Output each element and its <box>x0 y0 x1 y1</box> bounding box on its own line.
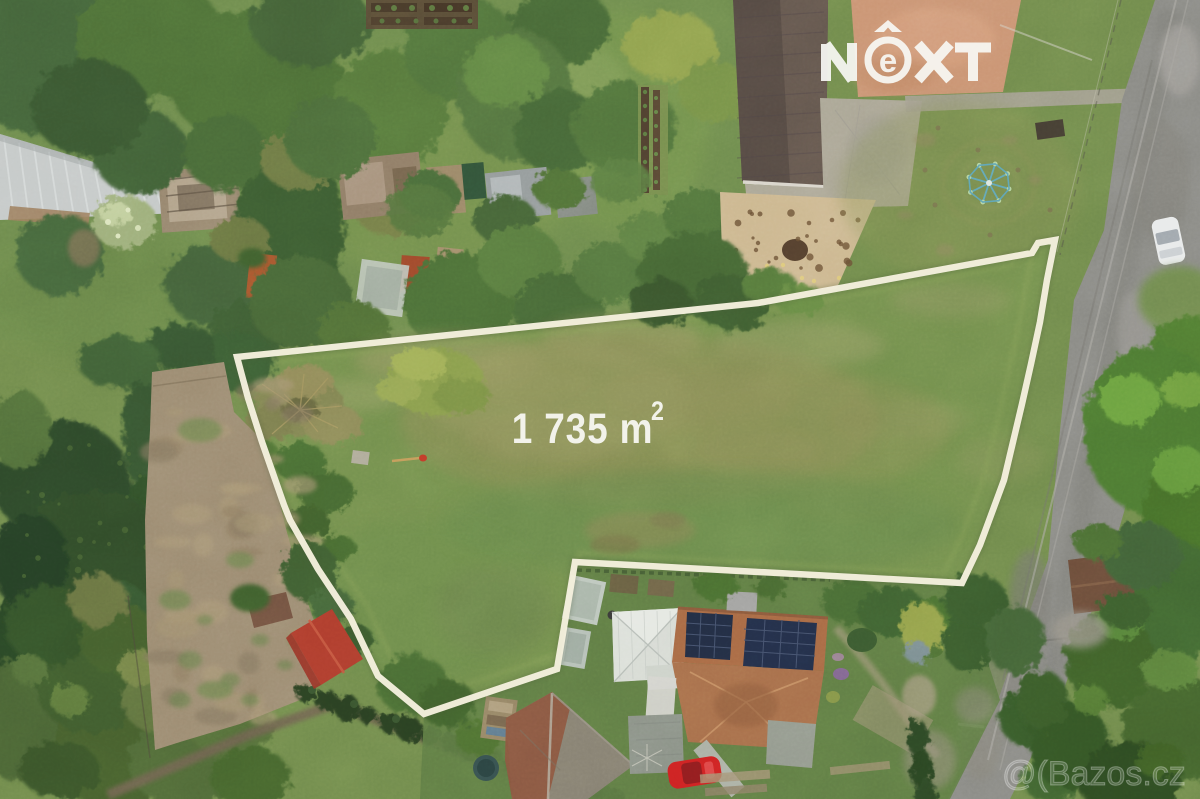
svg-text:@(Bazos.cz: @(Bazos.cz <box>1002 755 1186 793</box>
svg-text:1 735 m: 1 735 m <box>512 405 654 452</box>
svg-text:2: 2 <box>651 396 664 426</box>
svg-text:e: e <box>879 42 897 79</box>
